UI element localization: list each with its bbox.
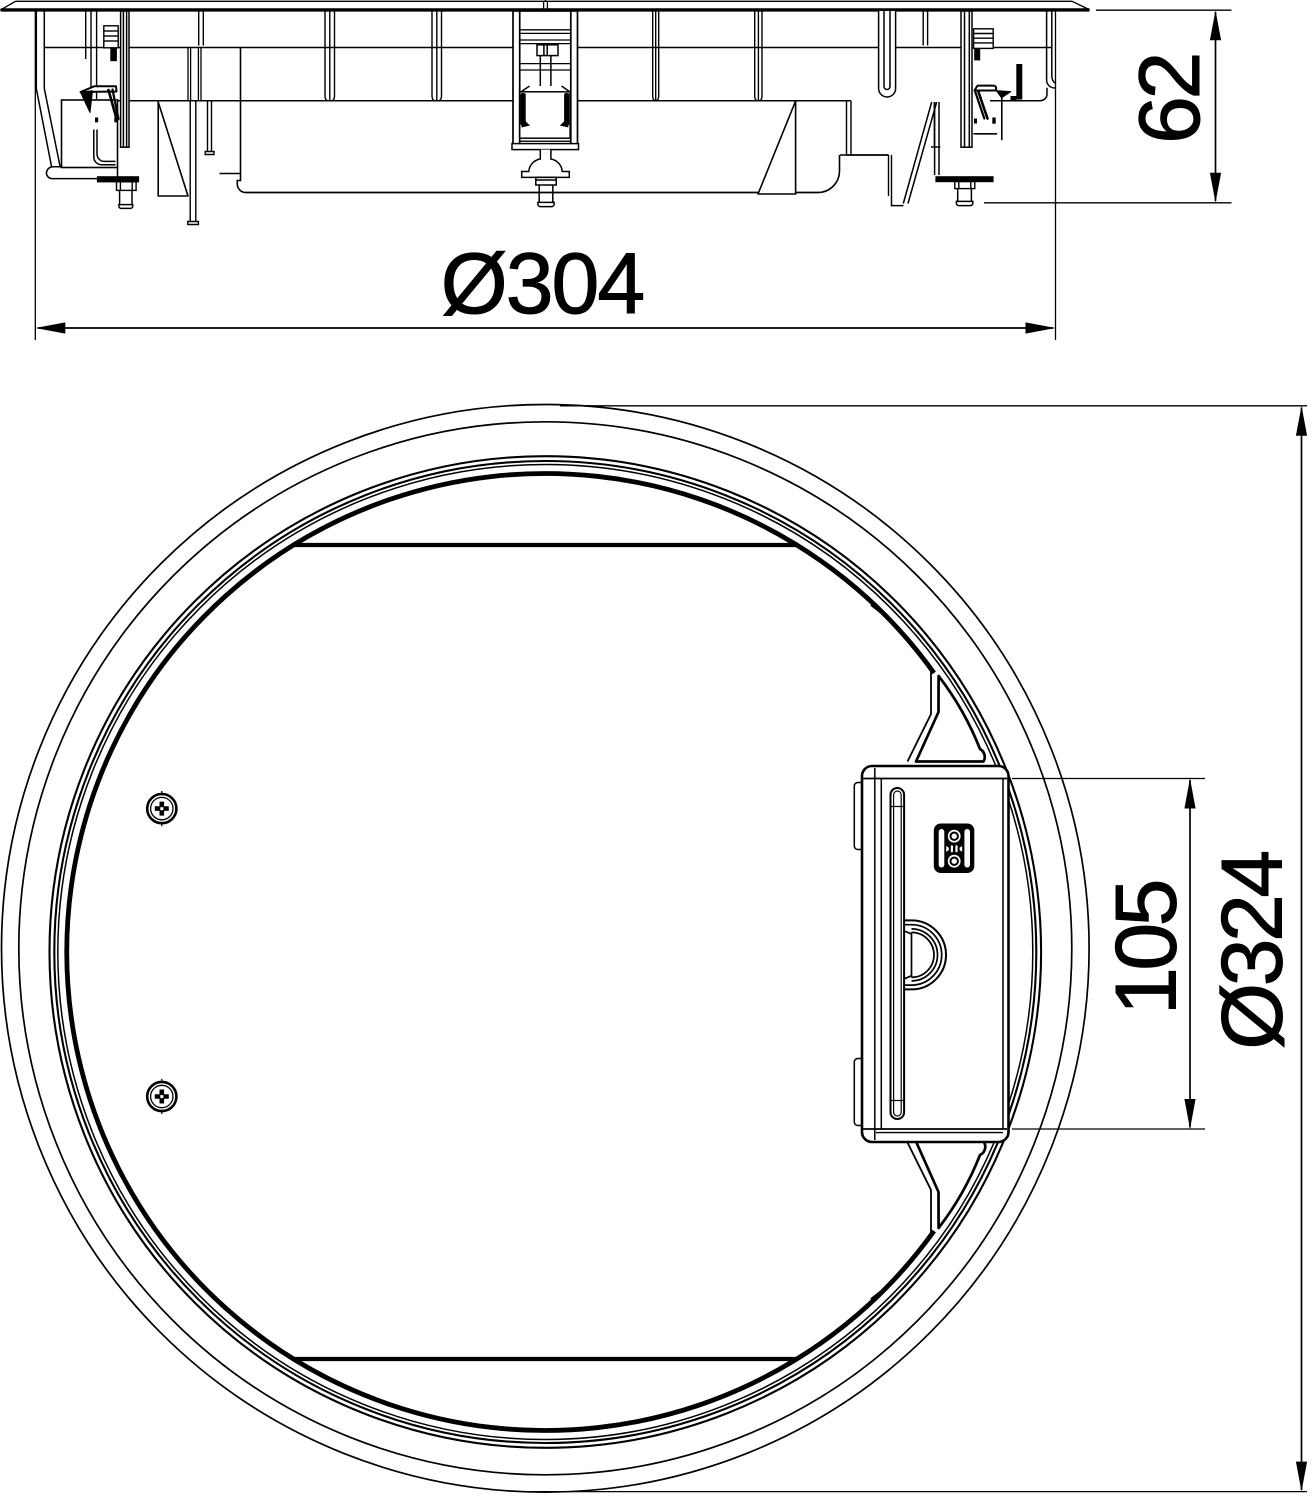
svg-text:62: 62 — [1122, 55, 1218, 144]
svg-text:Ø304: Ø304 — [441, 236, 644, 332]
svg-text:Ø324: Ø324 — [1205, 852, 1301, 1050]
svg-text:105: 105 — [1099, 881, 1195, 1015]
